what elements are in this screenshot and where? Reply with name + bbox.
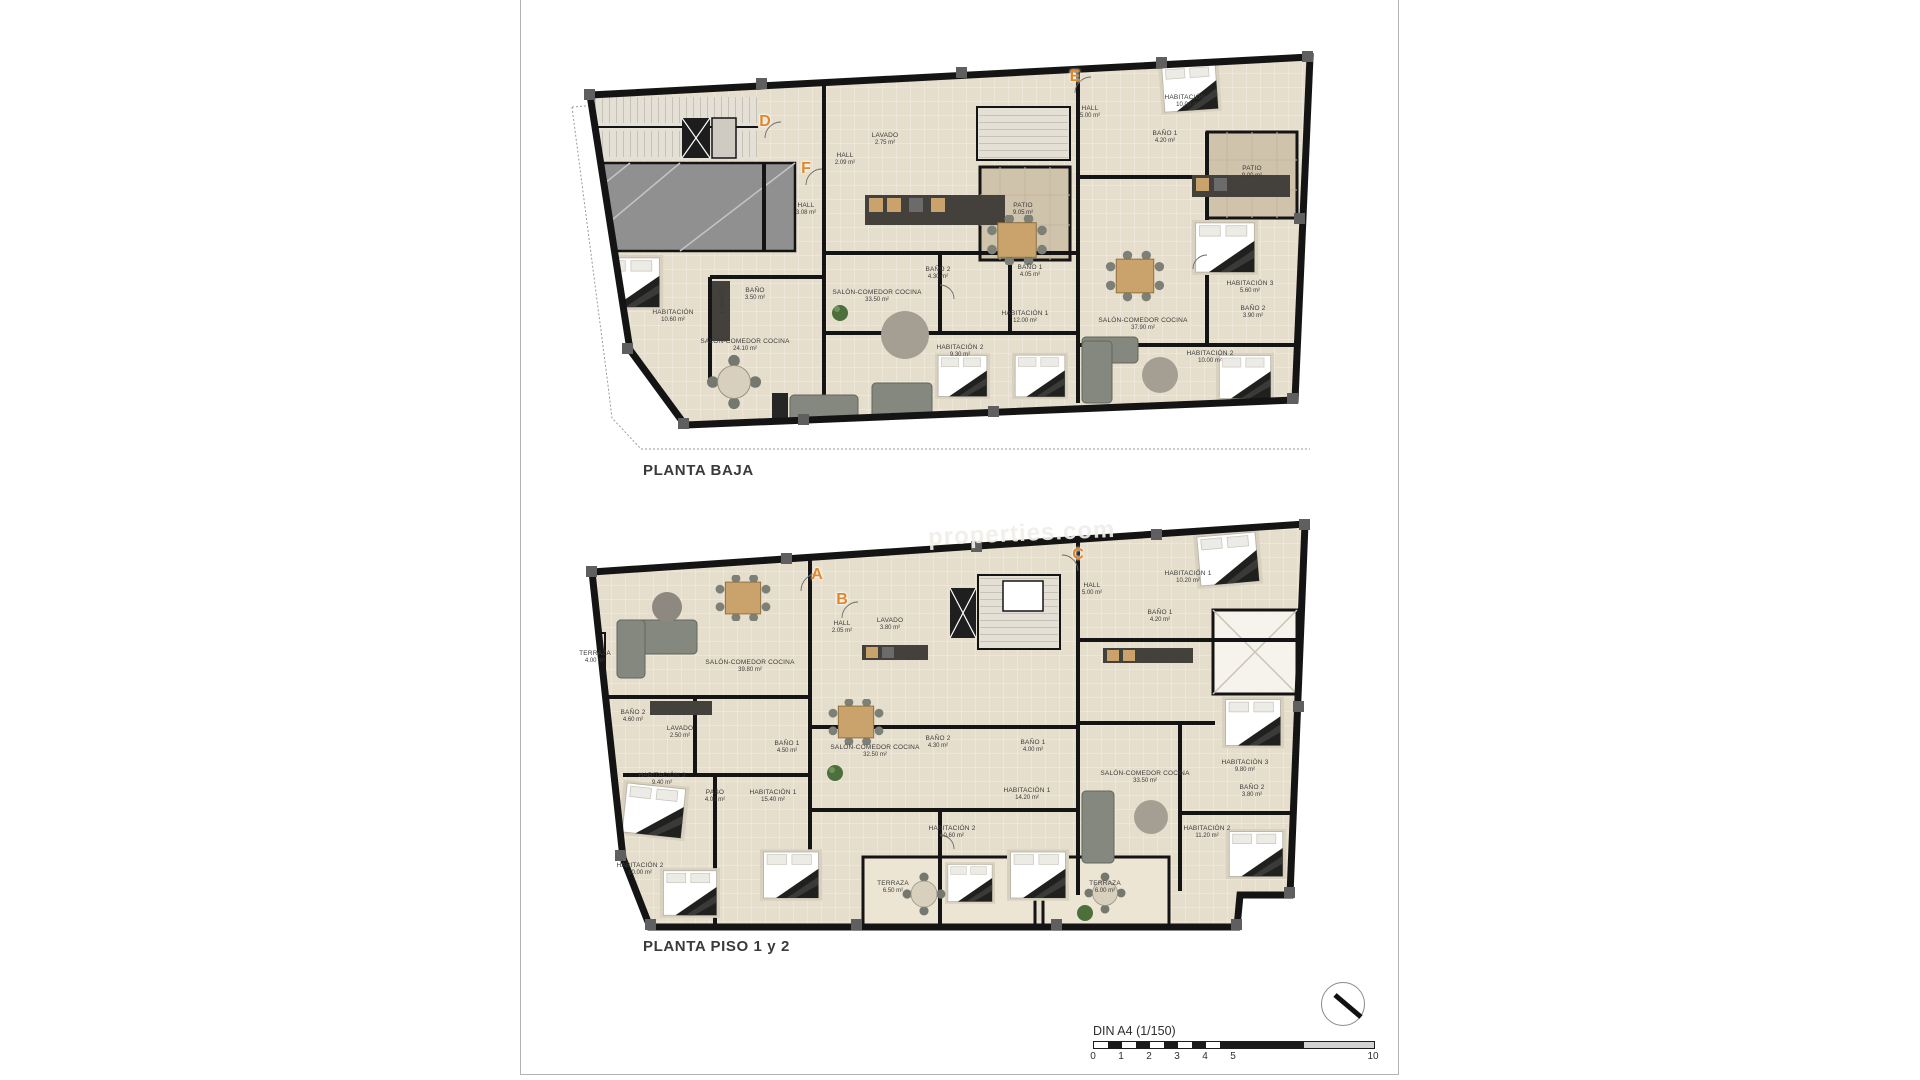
scale-tick-label: 2	[1146, 1051, 1152, 1062]
sofa	[1082, 791, 1114, 863]
planta-baja-drawing	[560, 45, 1330, 465]
plant	[832, 305, 848, 321]
scale-bar-cell	[1136, 1042, 1150, 1048]
rug	[881, 311, 929, 359]
plan-title-planta-piso: PLANTA PISO 1 y 2	[643, 938, 790, 955]
sofa	[790, 395, 858, 431]
rug	[652, 592, 682, 622]
scale-bar-cell	[1108, 1042, 1122, 1048]
sofa	[1082, 341, 1112, 403]
scale-bar-graphic	[1093, 1041, 1375, 1049]
scale-bar-cell	[1220, 1042, 1234, 1048]
stair-void	[1003, 581, 1043, 611]
scale-tick-label: 10	[1367, 1051, 1378, 1062]
scale-bar-cell	[1304, 1042, 1374, 1048]
plant	[563, 629, 579, 645]
planta-piso-drawing	[555, 515, 1335, 940]
rug	[1134, 800, 1168, 834]
scale-bar-cell	[1192, 1042, 1206, 1048]
scale-tick-label: 1	[1118, 1051, 1124, 1062]
scale-bar-cell	[1094, 1042, 1108, 1048]
scale-tick-label: 3	[1174, 1051, 1180, 1062]
sofa	[617, 620, 645, 678]
floor-plan-sheet-page: { "sheet": { "watermark": "properties.co…	[0, 0, 1920, 1080]
scale-tick-label: 0	[1090, 1051, 1096, 1062]
scale-bar: DIN A4 (1/150) 01234510	[1093, 1024, 1393, 1065]
scale-tick-label: 4	[1202, 1051, 1208, 1062]
scale-tick-label: 5	[1230, 1051, 1236, 1062]
scale-bar-ticks: 01234510	[1093, 1051, 1393, 1065]
scale-bar-cell	[1164, 1042, 1178, 1048]
plant	[827, 765, 843, 781]
scale-bar-cell	[1206, 1042, 1220, 1048]
rug	[1142, 357, 1178, 393]
plant	[1077, 905, 1093, 921]
scale-bar-cell	[1150, 1042, 1164, 1048]
scale-bar-cell	[1178, 1042, 1192, 1048]
north-arrow-icon	[1320, 981, 1366, 1027]
scale-bar-cell	[1122, 1042, 1136, 1048]
plan-title-planta-baja: PLANTA BAJA	[643, 462, 754, 479]
scale-bar-cell	[1234, 1042, 1304, 1048]
